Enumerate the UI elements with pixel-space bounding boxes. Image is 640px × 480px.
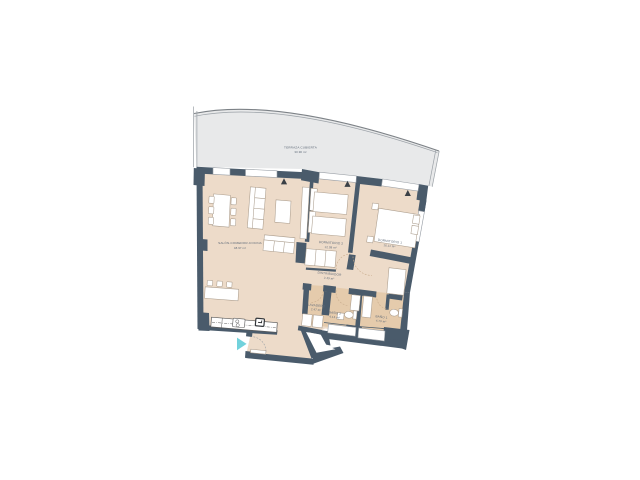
svg-text:TERRAZA CUBIERTA: TERRAZA CUBIERTA [284, 145, 318, 149]
svg-text:12.09 m²: 12.09 m² [324, 245, 336, 250]
svg-text:48.97 m²: 48.97 m² [234, 246, 246, 250]
svg-text:30.90 m²: 30.90 m² [294, 150, 306, 154]
svg-text:SALÓN-COMEDOR-COCINA: SALÓN-COMEDOR-COCINA [218, 240, 263, 245]
